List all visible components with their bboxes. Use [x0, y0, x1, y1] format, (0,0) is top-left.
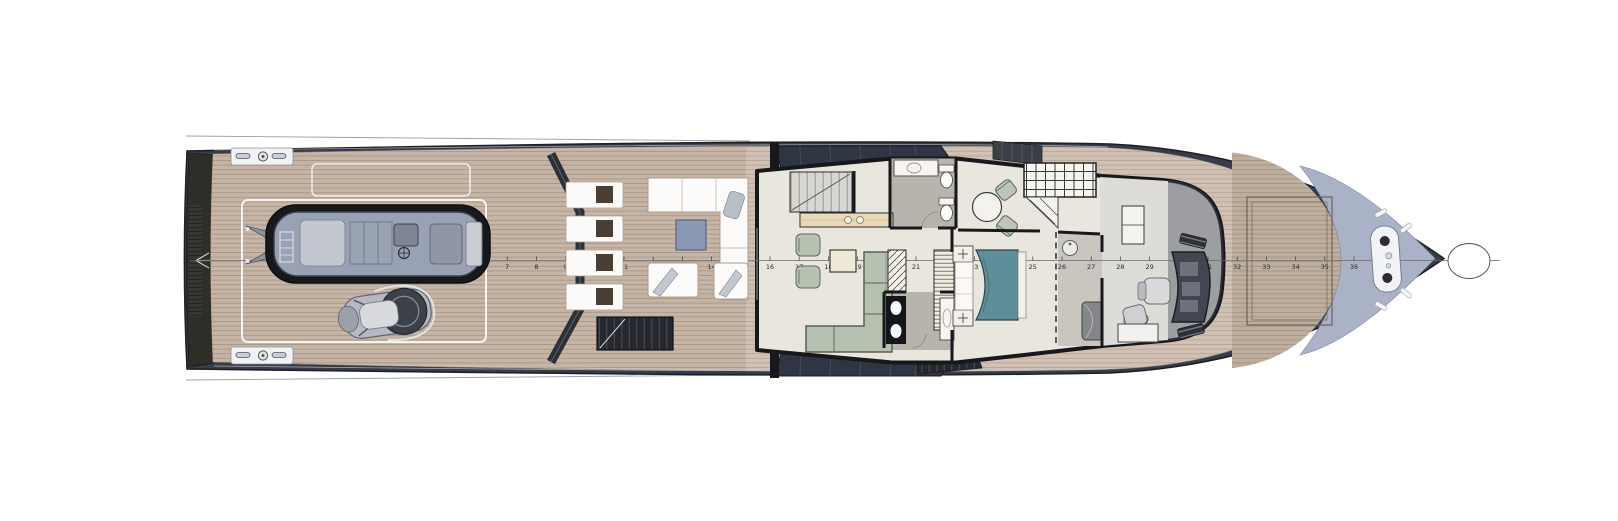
- cleat-icon: [272, 154, 286, 159]
- mooring-plate-starboard: [231, 347, 293, 364]
- captain-chair: [1138, 278, 1170, 304]
- frame-number: 35: [1321, 263, 1329, 271]
- vanity-counter: [894, 160, 938, 176]
- frame-number: 29: [1145, 263, 1153, 271]
- yacht-deck-plan: 6789101112131415161718192021222324252627…: [0, 0, 1618, 521]
- jet-ski-seat: [358, 299, 399, 330]
- frame-number: 8: [534, 263, 538, 271]
- frame-number: 34: [1291, 263, 1299, 271]
- max-beam-line-top: [186, 136, 750, 141]
- cleat-icon: [236, 154, 250, 159]
- deck-plan-drawing: 6789101112131415161718192021222324252627…: [0, 0, 1618, 521]
- wardrobe: [888, 250, 906, 292]
- chart-desk: [1118, 324, 1158, 342]
- frame-number: 16: [766, 263, 774, 271]
- toilet-icon: [891, 301, 902, 315]
- galley-counter: [800, 213, 893, 227]
- salon-armchair: [796, 266, 820, 288]
- tender-mid-deck: [350, 222, 392, 264]
- sun-lounger: [566, 250, 623, 276]
- bed-footboard: [1018, 252, 1026, 318]
- tender-console: [394, 224, 418, 246]
- deck-staircase: [597, 317, 673, 350]
- salon-coffee-table: [830, 250, 856, 272]
- tender-aft-bench: [430, 224, 462, 264]
- frame-number: 33: [1262, 263, 1270, 271]
- windlass-plate: [1370, 225, 1403, 293]
- bed-pillows: [955, 262, 973, 310]
- sun-lounger: [566, 216, 623, 242]
- salon-armchair: [796, 234, 820, 256]
- sun-lounger: [566, 182, 623, 208]
- frame-number: 36: [1350, 263, 1358, 271]
- bidet-icon: [939, 198, 954, 221]
- frame-number: 27: [1087, 263, 1095, 271]
- interior-staircase: [790, 172, 852, 212]
- max-beam-line-bottom: [186, 375, 750, 380]
- dining-table: [973, 193, 1002, 222]
- toilet-icon: [939, 165, 954, 188]
- frame-number: 26: [1058, 263, 1066, 271]
- sun-lounger: [566, 284, 623, 310]
- tender-stern-platform: [466, 222, 482, 266]
- mooring-plate-port: [231, 148, 293, 165]
- cleat-icon: [272, 353, 286, 358]
- frame-number: 28: [1116, 263, 1124, 271]
- bidet-icon: [891, 324, 902, 338]
- bow-cleat-icon: [1399, 287, 1412, 299]
- frame-number: 32: [1233, 263, 1241, 271]
- tender: [246, 205, 491, 283]
- cleat-icon: [236, 353, 250, 358]
- owner-bed: [953, 246, 1026, 326]
- superstructure-post: [770, 350, 779, 378]
- frame-number: 7: [505, 263, 509, 271]
- deck-daybed: [648, 263, 748, 299]
- frame-number: 25: [1029, 263, 1037, 271]
- tender-bow-pad: [300, 220, 345, 266]
- bow-anchor-ellipse: [1448, 244, 1490, 279]
- frame-number: 21: [912, 263, 920, 271]
